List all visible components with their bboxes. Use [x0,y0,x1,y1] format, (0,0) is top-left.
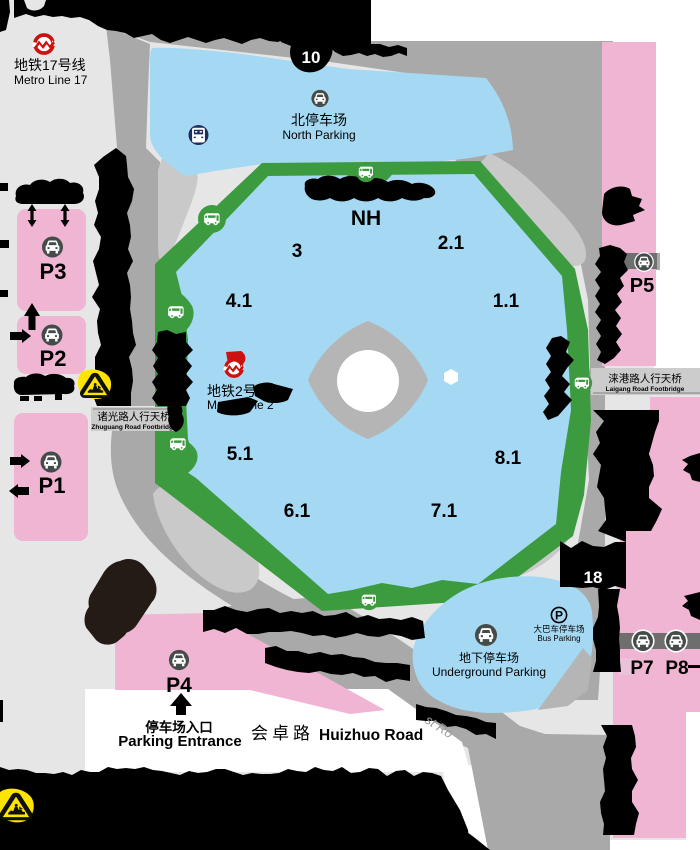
svg-text:大巴车停车场: 大巴车停车场 [533,624,584,634]
svg-text:地下停车场: 地下停车场 [459,650,519,665]
svg-text:诸光路人行天桥: 诸光路人行天桥 [97,410,171,423]
svg-text:Parking Entrance: Parking Entrance [118,733,241,750]
svg-text:P1: P1 [39,473,66,498]
svg-text:Zhuguang Road Footbridge: Zhuguang Road Footbridge [91,424,177,431]
svg-text:10: 10 [302,48,321,67]
svg-text:4.1: 4.1 [226,291,253,312]
svg-text:北停车场: 北停车场 [291,112,347,128]
svg-text:7.1: 7.1 [431,501,458,522]
svg-text:8.1: 8.1 [495,448,522,469]
svg-text:6.1: 6.1 [284,501,311,522]
svg-text:会卓路: 会卓路 [251,724,314,743]
svg-text:P2: P2 [40,346,67,371]
svg-text:P7: P7 [630,658,653,679]
svg-text:P4: P4 [166,674,192,697]
svg-text:3: 3 [292,241,303,262]
svg-text:NH: NH [351,207,381,230]
svg-text:P8: P8 [665,658,688,679]
svg-text:P3: P3 [40,259,67,284]
svg-text:5.1: 5.1 [227,444,254,465]
svg-text:Metro Line 2: Metro Line 2 [207,398,274,412]
svg-text:地铁2号线: 地铁2号线 [207,383,271,399]
svg-text:Metro Line 17: Metro Line 17 [14,73,88,87]
svg-text:涞港路人行天桥: 涞港路人行天桥 [608,372,682,385]
svg-text:P5: P5 [630,275,654,297]
svg-text:地铁17号线: 地铁17号线 [14,57,86,73]
svg-text:Laigang Road Footbridge: Laigang Road Footbridge [606,386,685,393]
svg-text:18: 18 [584,568,603,587]
svg-text:Bus Parking: Bus Parking [537,634,580,643]
svg-text:2.1: 2.1 [438,233,465,254]
svg-text:North Parking: North Parking [282,128,355,142]
svg-text:Huizhuo Road: Huizhuo Road [319,727,423,744]
svg-text:Underground Parking: Underground Parking [432,665,546,679]
svg-text:1.1: 1.1 [493,291,520,312]
